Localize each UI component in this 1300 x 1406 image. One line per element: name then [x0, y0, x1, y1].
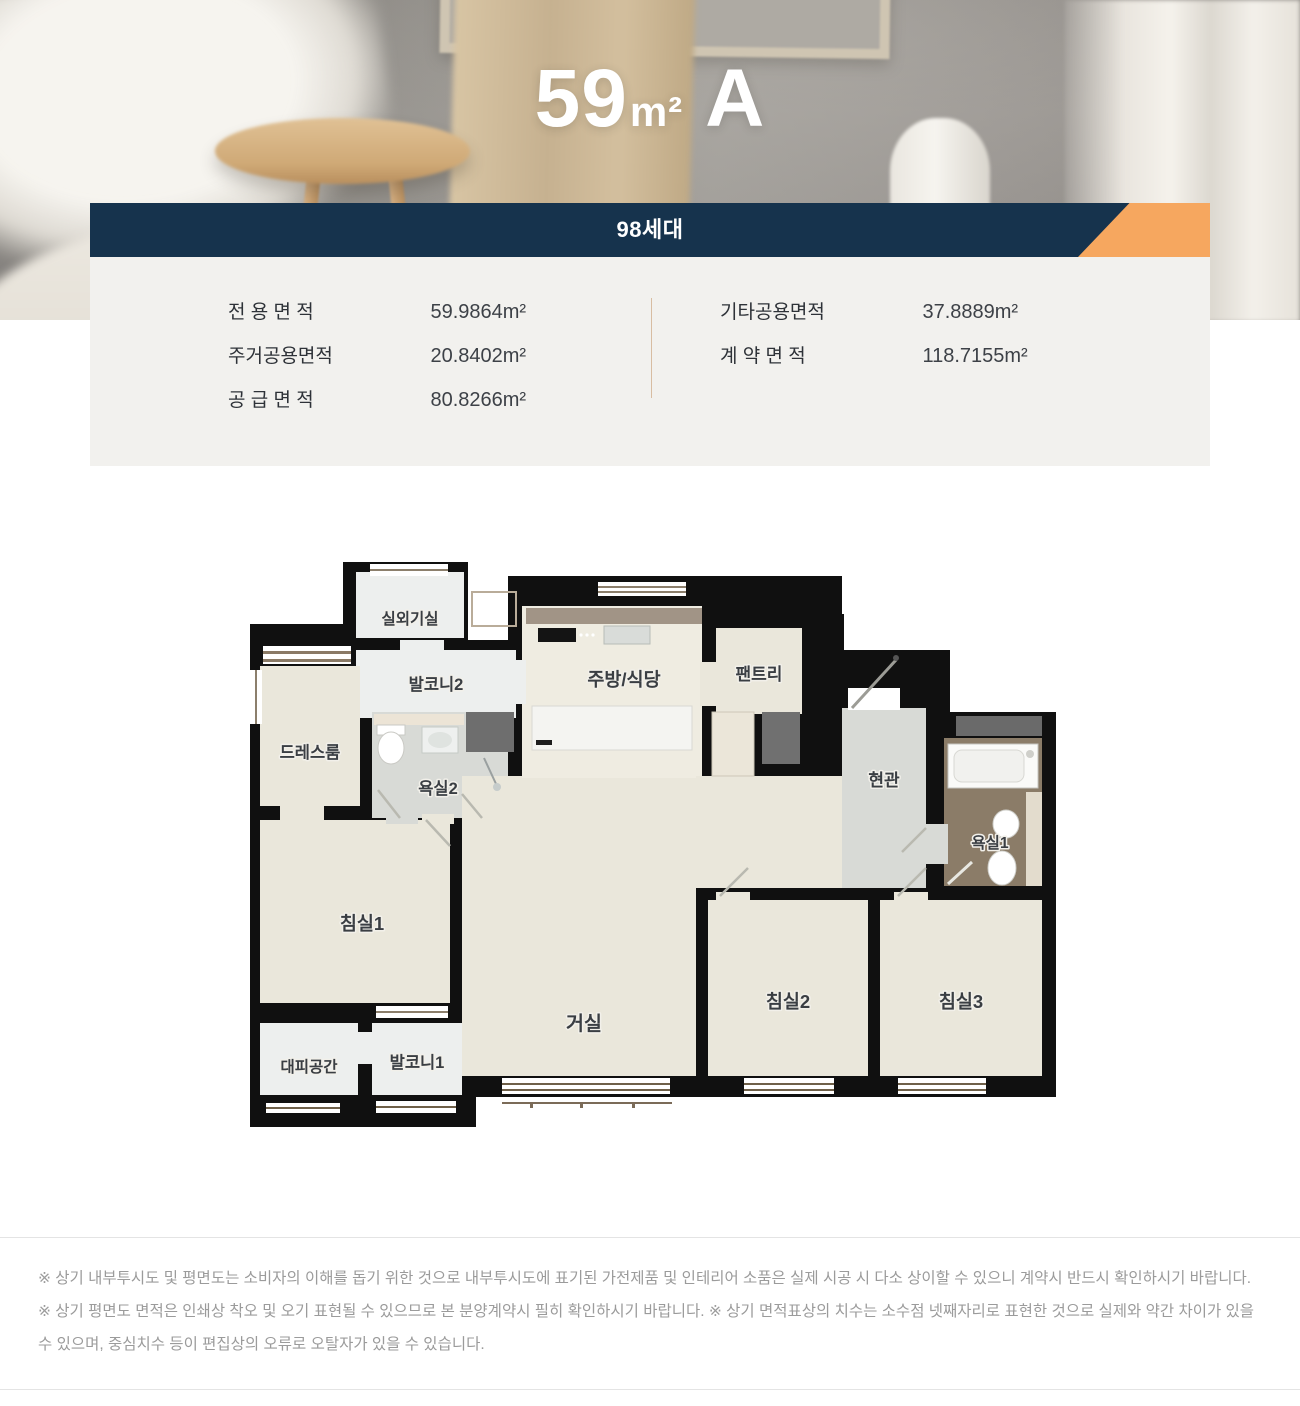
room-hallway: [696, 776, 842, 888]
area-label: 공 급 면 적: [228, 386, 378, 416]
room-label-bedroom3: 침실3: [939, 991, 983, 1012]
room-label-bedroom1: 침실1: [340, 913, 384, 934]
area-row: 계 약 면 적 118.7155m²: [720, 341, 1028, 371]
bath1-toilet: [988, 851, 1016, 885]
footer-disclaimer: ※ 상기 내부투시도 및 평면도는 소비자의 이해를 돕기 위한 것으로 내부투…: [0, 1237, 1300, 1390]
units-banner: 98세대: [90, 203, 1210, 257]
bath1-shelf: [1026, 792, 1042, 886]
room-label-entrance: 현관: [868, 771, 900, 790]
area-value: 59.9864m²: [430, 297, 526, 327]
kitchen-island: [532, 706, 692, 750]
room-dress: [260, 666, 360, 806]
kitchen-counter: [526, 608, 702, 624]
page: 59m²A 98세대 전 용 면 적 59.9864m² 주거공용면적 20.8…: [0, 0, 1300, 1406]
hall-grey-box: [762, 712, 800, 764]
area-row: 전 용 면 적 59.9864m²: [228, 297, 526, 327]
floor-plan: 실외기실 발코니2 주방/식당 팬트리 드레스룸 욕실2 현관 욕실1 침실1 …: [250, 562, 1070, 1140]
room-label-shelter: 대피공간: [280, 1058, 338, 1076]
room-label-outdoor-unit: 실외기실: [381, 610, 438, 628]
area-unit: m²: [630, 88, 683, 135]
room-label-kitchen: 주방/식당: [587, 669, 660, 690]
area-row: 공 급 면 적 80.8266m²: [228, 385, 526, 415]
area-value: 118.7155m²: [922, 341, 1027, 371]
floor-plan-svg: 실외기실 발코니2 주방/식당 팬트리 드레스룸 욕실2 현관 욕실1 침실1 …: [250, 562, 1070, 1140]
area-label: 계 약 면 적: [720, 342, 870, 372]
area-number: 59: [535, 53, 628, 144]
bath2-shower: [493, 783, 501, 791]
area-row: 주거공용면적 20.8402m²: [228, 341, 526, 371]
bath2-toilet: [378, 732, 404, 764]
room-bedroom2: [708, 900, 868, 1076]
room-label-pantry: 팬트리: [736, 665, 783, 684]
room-label-bathroom2: 욕실2: [418, 779, 458, 798]
room-label-bedroom2: 침실2: [766, 991, 810, 1012]
hall-closet: [712, 712, 754, 776]
bath1-sink: [993, 810, 1019, 838]
area-row: 기타공용면적 37.8889m²: [720, 297, 1018, 327]
room-label-balcony2: 발코니2: [409, 675, 464, 694]
cooktop: [538, 628, 576, 642]
room-bedroom1: [260, 820, 450, 1003]
area-value: 37.8889m²: [922, 297, 1018, 327]
disclaimer-text: ※ 상기 내부투시도 및 평면도는 소비자의 이해를 돕기 위한 것으로 내부투…: [38, 1262, 1262, 1361]
room-label-bathroom1: 욕실1: [971, 834, 1009, 852]
bath2-counter: [374, 714, 464, 725]
area-value: 80.8266m²: [430, 385, 526, 415]
room-label-dress: 드레스룸: [280, 743, 341, 762]
type-letter: A: [705, 53, 765, 144]
area-label: 기타공용면적: [720, 298, 870, 328]
bath1-vent: [956, 716, 1042, 736]
units-count-label: 98세대: [90, 203, 1210, 257]
room-label-living: 거실: [566, 1013, 602, 1035]
page-title: 59m²A: [0, 58, 1300, 140]
room-outdoor-unit: [356, 572, 464, 638]
area-label: 전 용 면 적: [228, 298, 378, 328]
fridge-box: [466, 712, 514, 752]
room-label-balcony1: 발코니1: [390, 1053, 445, 1072]
area-info-panel: 전 용 면 적 59.9864m² 주거공용면적 20.8402m² 공 급 면…: [90, 257, 1210, 466]
area-value: 20.8402m²: [430, 341, 526, 371]
room-entrance: [842, 708, 926, 888]
panel-divider: [651, 298, 652, 398]
area-label: 주거공용면적: [228, 342, 378, 372]
kitchen-sink: [604, 626, 650, 644]
room-bedroom3: [880, 900, 1042, 1076]
